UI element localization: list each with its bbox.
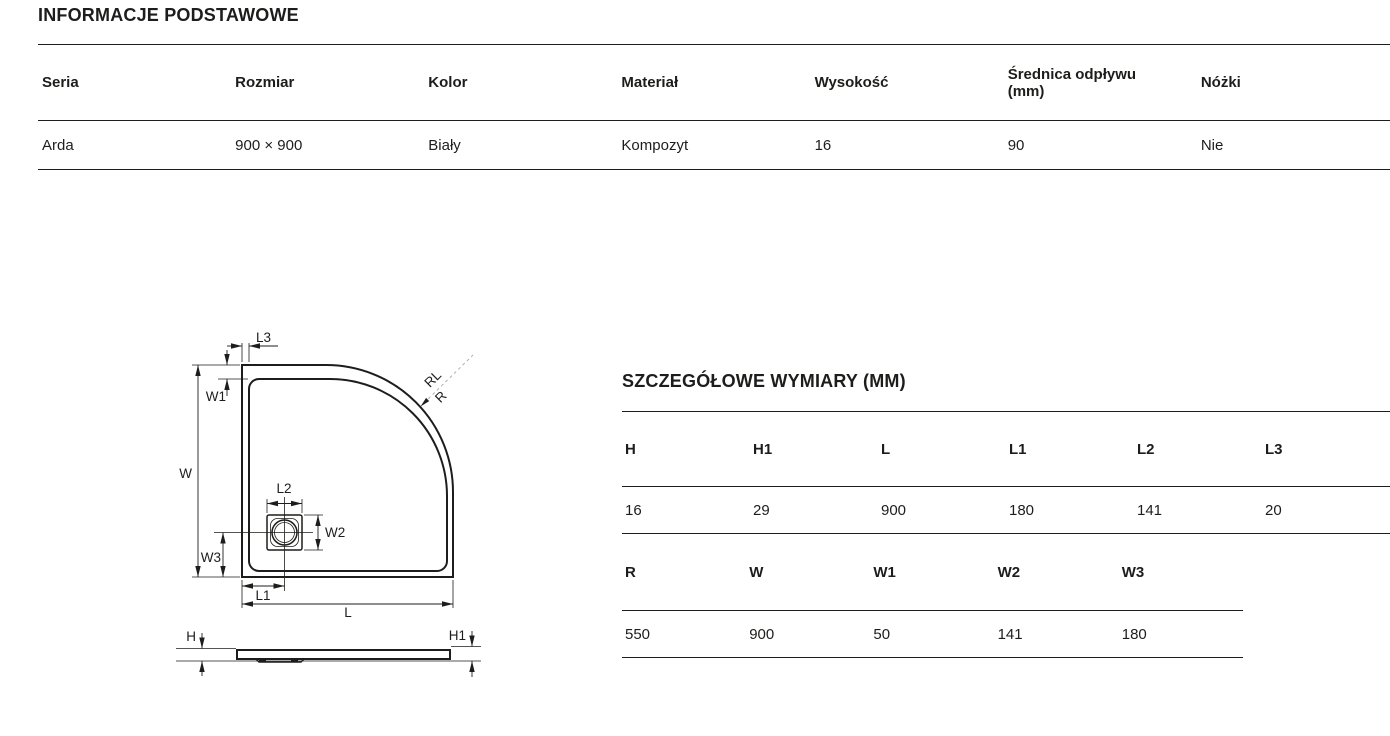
dimensions-table-lengths: H H1 L L1 L2 L3 16 29 900 180 141 20 — [622, 411, 1390, 534]
value-h: 16 — [622, 487, 750, 534]
value-w: 900 — [746, 611, 870, 658]
basic-info-data-row: Arda 900 × 900 Biały Kompozyt 16 90 Nie — [38, 121, 1390, 170]
value-h1: 29 — [750, 487, 878, 534]
col-h1: H1 — [750, 412, 878, 487]
radius-arrowhead — [421, 398, 430, 407]
value-srednica-odplywu: 90 — [1004, 121, 1197, 170]
col-seria: Seria — [38, 45, 231, 121]
label-w3: W3 — [201, 550, 221, 565]
technical-diagram: L3 W1 W L2 W2 W3 L1 L RL R H H1 — [168, 330, 495, 695]
col-nozki: Nóżki — [1197, 45, 1390, 121]
col-w1: W1 — [870, 534, 994, 611]
dimensions-data-row-2: 550 900 50 141 180 — [622, 611, 1243, 658]
value-w3: 180 — [1119, 611, 1243, 658]
label-h1: H1 — [449, 628, 466, 643]
value-l3: 20 — [1262, 487, 1390, 534]
label-rl: RL — [421, 367, 444, 390]
label-l3: L3 — [256, 330, 271, 345]
label-w1: W1 — [206, 389, 226, 404]
extension-lines — [192, 343, 453, 608]
dimensions-table-widths: R W W1 W2 W3 550 900 50 141 180 — [622, 534, 1243, 658]
label-l: L — [344, 605, 352, 620]
col-l3: L3 — [1262, 412, 1390, 487]
value-r: 550 — [622, 611, 746, 658]
dimensions-data-row: 16 29 900 180 141 20 — [622, 487, 1390, 534]
value-l2: 141 — [1134, 487, 1262, 534]
value-rozmiar: 900 × 900 — [231, 121, 424, 170]
basic-info-title: INFORMACJE PODSTAWOWE — [38, 5, 299, 26]
label-r: R — [432, 388, 450, 406]
product-spec-page: { "colors": { "text": "#1d1d1b", "table_… — [0, 0, 1390, 736]
col-kolor: Kolor — [424, 45, 617, 121]
basic-info-table: Seria Rozmiar Kolor Materiał Wysokość Śr… — [38, 44, 1390, 170]
label-w: W — [179, 466, 192, 481]
tray-side-view — [176, 631, 481, 677]
col-rozmiar: Rozmiar — [231, 45, 424, 121]
col-w2: W2 — [995, 534, 1119, 611]
col-l: L — [878, 412, 1006, 487]
value-w1: 50 — [870, 611, 994, 658]
value-material: Kompozyt — [617, 121, 810, 170]
col-l1: L1 — [1006, 412, 1134, 487]
value-wysokosc: 16 — [811, 121, 1004, 170]
value-l1: 180 — [1006, 487, 1134, 534]
col-h: H — [622, 412, 750, 487]
label-l1: L1 — [255, 588, 270, 603]
value-seria: Arda — [38, 121, 231, 170]
col-l2: L2 — [1134, 412, 1262, 487]
col-w: W — [746, 534, 870, 611]
detailed-dimensions-title: SZCZEGÓŁOWE WYMIARY (MM) — [622, 371, 906, 392]
value-kolor: Biały — [424, 121, 617, 170]
value-w2: 141 — [995, 611, 1119, 658]
label-l2: L2 — [276, 481, 291, 496]
basic-info-header-row: Seria Rozmiar Kolor Materiał Wysokość Śr… — [38, 45, 1390, 121]
value-l: 900 — [878, 487, 1006, 534]
col-wysokosc: Wysokość — [811, 45, 1004, 121]
value-nozki: Nie — [1197, 121, 1390, 170]
dimensions-header-row: H H1 L L1 L2 L3 — [622, 412, 1390, 487]
col-r: R — [622, 534, 746, 611]
col-srednica-odplywu: Średnica odpływu (mm) — [1004, 45, 1197, 121]
dimensions-header-row-2: R W W1 W2 W3 — [622, 534, 1243, 611]
col-w3: W3 — [1119, 534, 1243, 611]
label-w2: W2 — [325, 525, 345, 540]
label-h: H — [186, 629, 196, 644]
col-material: Materiał — [617, 45, 810, 121]
